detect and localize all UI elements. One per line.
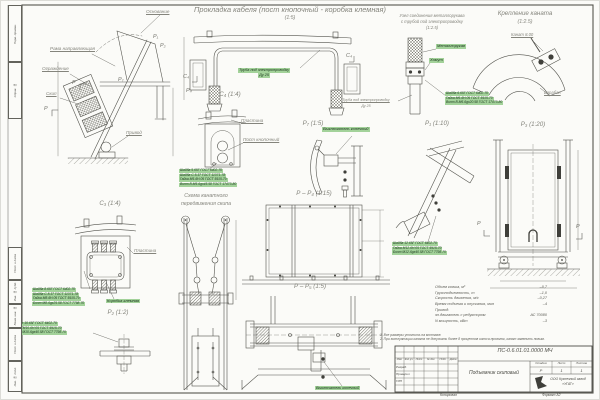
spec-name: N мощность, кВт (435, 319, 468, 325)
marker-c4-left: С₄ (183, 75, 189, 81)
footer-format: Формат А2 (542, 394, 561, 398)
c4-plate-label: Пластина (241, 119, 263, 124)
sleeve-title-line2: с трубой под электропроводку (384, 20, 480, 24)
drawing-frame (22, 5, 593, 393)
marker-p7: Р₇ (118, 78, 124, 84)
skip-label: Скип (46, 92, 57, 97)
p3-marker-right: Р (576, 225, 580, 231)
c4-post-label: Пост кнопочный (243, 138, 279, 143)
sleeve-title-scale: (1:2.5) (384, 26, 480, 30)
sleeve-fastener-callout: Шайба 6.65Г ГОСТ 6402-70 Гайка М6-6Н.05 … (445, 92, 503, 105)
pp5-title: Р – Р₅ (1:5) (274, 284, 346, 291)
callout-line: Болт М8-6gх25.58 ГОСТ 7798-70 (32, 302, 85, 306)
p3-marker-left: Р (477, 222, 481, 228)
stamp-text: Взам. инв. № (13, 306, 17, 325)
p1-fastener-callout: Шайба 12.65Г ГОСТ 6402-70 Гайка М12-6Н.0… (392, 242, 447, 255)
sheet-label: Лист (552, 362, 571, 365)
pp5-switch-label: Выключатель конечный (315, 386, 360, 391)
view-c4-detail (198, 110, 246, 170)
scheme-title-line2: передвижения скипа (166, 202, 246, 207)
object-name: Подъемник скиповый (458, 371, 530, 377)
pipe-label-green-line2: Ду 25 (258, 73, 270, 78)
c3-title: С₃ (1:4) (84, 201, 136, 208)
view-p2-detail (93, 333, 150, 374)
callout-line: Болт М12-6gх40.58 ГОСТ 7798-70 (392, 251, 447, 255)
stamp-text: Перв. примен. (13, 24, 17, 44)
row-proveril: Проверил (396, 373, 410, 376)
view-pp5 (242, 296, 386, 390)
note-2: 2. При эксплуатации каната не допускать … (380, 337, 545, 341)
spec-value: –3 (543, 319, 547, 325)
main-title: Прокладка кабеля (пост кнопочный - короб… (150, 6, 430, 14)
scheme-title-line1: Схема канатного (166, 194, 246, 199)
rope-label: Канат 8.00 (511, 33, 533, 37)
guide-frame-label: Рама направляющая (50, 47, 95, 52)
clamp-label: Хомут (429, 58, 444, 63)
base-label: Основание (146, 10, 169, 15)
c3-fastener-callout: Шайба 8.65Г ГОСТ 6402-70 Шайба С.8.37 ГО… (32, 288, 85, 306)
stamp-podp-data-2: Подп. и дата (8, 328, 22, 361)
pipe-label-gray-line1: Труба под электропроводку (330, 99, 402, 103)
row-razrab: Разраб. (396, 366, 407, 369)
marker-p2: Р₂ (160, 44, 166, 50)
sheet-value: 1 (552, 369, 571, 373)
sheets-label: Листов (571, 362, 592, 365)
stage-value: Р (530, 369, 552, 373)
sleeve-title-line1: Узел соединения металлорукава (384, 14, 480, 18)
p1-title: Р₁ (1:10) (413, 121, 461, 128)
view-p7-detail (311, 136, 364, 197)
rope-fix-scale: (1:2.5) (470, 20, 580, 25)
col-koluch: Кол.уч. (404, 359, 414, 362)
view-pp4 (242, 205, 390, 284)
p2-title: Р₂ (1:2) (96, 310, 140, 317)
col-izm: Изм. (395, 359, 404, 362)
stamp-inv-podl: Инв. № подл. (8, 361, 22, 392)
stamp-text: Подп. и дата (13, 335, 17, 354)
pp4-title: Р – Р₄ (1:15) (278, 191, 350, 198)
doc-number: ПС-0.6.01.01.0000 МЧ (458, 349, 592, 355)
pipe-label-green-line1: Труба под электропроводку (238, 68, 290, 73)
drive-label: Привод (126, 131, 142, 136)
note-1: 1. Все размеры уточнить на монтаже. (380, 333, 441, 337)
spec-value: –4 (543, 302, 547, 308)
sheets-value: 1 (571, 369, 592, 373)
view-rope-scheme (179, 216, 236, 390)
col-podp: Подп. (438, 359, 448, 362)
stamp-perv-primen: Перв. примен. (8, 5, 22, 62)
p3-title: Р₃ (1:20) (504, 122, 562, 129)
c3-box-label: Коробка клемная (106, 299, 140, 304)
stamp-inv-dubl: Инв. № дубл. (8, 280, 22, 304)
c3-plate-label: Пластина (134, 249, 156, 254)
pipe-label-green: Труба под электропроводку Ду 25 (238, 68, 290, 78)
col-ndoc: № док. (424, 359, 438, 362)
rope-fix-title: Крепление каната (470, 11, 580, 18)
drawing-sheet: Прокладка кабеля (пост кнопочный - короб… (0, 0, 600, 400)
fence-label: Ограждение (42, 67, 69, 72)
stamp-sprav-no: Справ. № (8, 62, 22, 119)
stamp-podp-data-1: Подп. и дата (8, 247, 22, 280)
spec-row: N мощность, кВт–3 (435, 319, 547, 325)
footer-copied: Копировал (440, 394, 457, 398)
col-list: Лист (414, 359, 424, 362)
marker-c4-right: С₄ (346, 54, 352, 60)
view-sleeve-joint (398, 38, 446, 114)
marker-p4: Р₄ (186, 89, 192, 95)
view-c3-detail (75, 216, 136, 299)
marker-p-b: Р (72, 81, 76, 87)
view-p3-front (484, 140, 582, 288)
company-name-line2: «УГАТ» (545, 383, 591, 387)
callout-line: Винт В.М6-6gх20.58 ГОСТ 17473-80 (445, 101, 503, 105)
c4-fastener-callout: Шайба 5.65Г ГОСТ 6402-70 Шайба С.5.37 ГО… (179, 169, 237, 187)
sleeve-label: Металлорукав (436, 44, 466, 49)
row-gip: ГИП (396, 380, 402, 383)
stamp-text: Инв. № подл. (13, 367, 17, 386)
p7-switch-label: Выключатель конечный (322, 127, 370, 132)
col-data: Дата (448, 359, 458, 362)
pipe-label-gray-line2: Ду 25 (330, 105, 402, 109)
tech-specs: Объем ковша, м³–0,7 Грузоподъемность, т–… (435, 285, 547, 325)
drum-label: Барабан (544, 91, 561, 95)
marker-p-a: Р (44, 107, 48, 113)
stamp-vzam-inv: Взам. инв. № (8, 304, 22, 328)
view-p1-detail (396, 141, 474, 242)
callout-line: Винт В.М5-6gх45.58 ГОСТ 17473-80 (179, 183, 237, 187)
stamp-text: Инв. № дубл. (13, 282, 17, 301)
c4-title: С₄ (1:4) (204, 92, 256, 99)
stage-label: Стадия (530, 362, 552, 365)
marker-p1: Р₁ (153, 35, 158, 41)
stamp-text: Подп. и дата (13, 254, 17, 273)
stamp-text: Справ. № (13, 83, 17, 97)
